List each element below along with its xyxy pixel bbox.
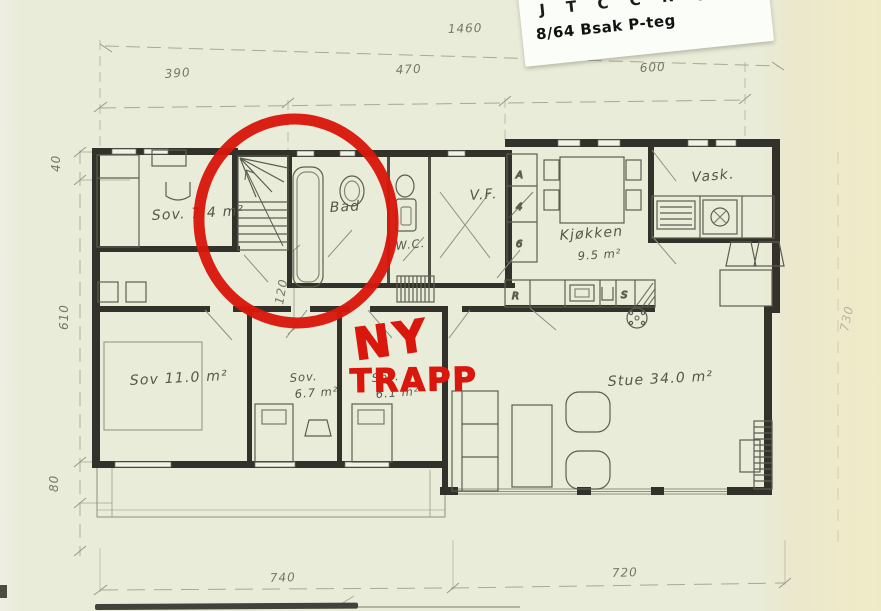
bed-icon bbox=[97, 155, 139, 247]
dim-top-3: 600 bbox=[639, 60, 666, 75]
red-circle-annotation bbox=[187, 108, 404, 334]
toilet-icon bbox=[396, 175, 414, 197]
dim-top-1: 390 bbox=[164, 65, 191, 81]
sofa-icon bbox=[452, 391, 498, 491]
dim-left-1: 40 bbox=[49, 155, 63, 172]
room-label-bad: Bad bbox=[329, 198, 360, 216]
dim-top-2: 470 bbox=[395, 62, 422, 77]
laundry-fixtures bbox=[652, 196, 774, 238]
room-label-sov3: Sov. bbox=[289, 369, 318, 385]
stairs bbox=[238, 156, 288, 250]
walls bbox=[92, 139, 780, 495]
room-label-sov2: Sov 11.0 m² bbox=[129, 368, 228, 389]
stool-icon bbox=[305, 420, 331, 436]
coffee-table-icon bbox=[512, 405, 552, 487]
cabinet-label-a: A bbox=[515, 170, 523, 181]
kitchen-counter bbox=[505, 280, 655, 307]
hall-hatch bbox=[397, 276, 434, 302]
geomatikk-logo: Geomatikk bbox=[695, 0, 759, 4]
terrace-outline bbox=[97, 468, 445, 517]
dim-bottom-1: 740 bbox=[270, 570, 296, 585]
bathroom-fixtures bbox=[293, 167, 364, 287]
room-label-kjokken: Kjøkken bbox=[559, 224, 624, 244]
dim-right: 730 bbox=[837, 304, 856, 332]
armchair-icon bbox=[566, 451, 610, 489]
dim-bottom-2: 720 bbox=[612, 565, 638, 580]
dim-overall-width: 1460 bbox=[448, 21, 483, 36]
chair-icon bbox=[726, 242, 756, 266]
room-label-kjokken-area: 9.5 m² bbox=[577, 246, 622, 263]
room-label-sov3-area: 6.7 m² bbox=[294, 384, 339, 401]
scan-artifacts bbox=[0, 585, 520, 610]
bed-icon bbox=[255, 404, 293, 462]
kitchen-table-icon bbox=[560, 157, 624, 223]
cabinet-label-r: R bbox=[512, 291, 519, 302]
dining-table-icon bbox=[720, 270, 772, 306]
room-label-vask: Vask. bbox=[691, 166, 735, 186]
room-label-stue: Stue 34.0 m² bbox=[607, 368, 713, 390]
cabinet-label-mid: 4 bbox=[516, 202, 522, 213]
annotation-word-trapp: TRAPP bbox=[349, 360, 478, 400]
floor-plan-drawing: 1460 390 470 600 740 720 40 610 80 730 1… bbox=[0, 0, 881, 611]
dim-left-2: 610 bbox=[57, 304, 71, 330]
room-label-vf: V.F. bbox=[469, 186, 498, 204]
room-label-wc: W.C. bbox=[395, 236, 426, 253]
livingroom-furniture bbox=[452, 391, 772, 491]
dim-left-3: 80 bbox=[47, 475, 61, 492]
armchair-icon bbox=[566, 392, 610, 432]
cabinet-label-s: S bbox=[621, 290, 628, 301]
cabinet-label-b: 6 bbox=[516, 239, 522, 250]
